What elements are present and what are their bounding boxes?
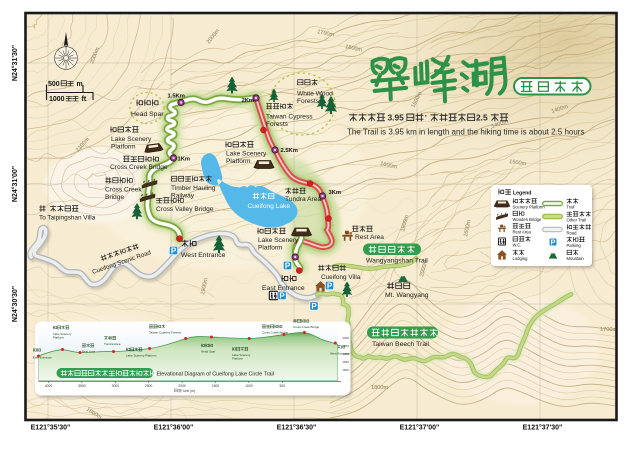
svg-text:2.5: 2.5 — [476, 113, 488, 123]
svg-text:1Km: 1Km — [178, 157, 191, 163]
svg-text:2Km: 2Km — [242, 98, 255, 104]
svg-text:White Wood: White Wood — [297, 91, 333, 98]
svg-text:3Km: 3Km — [329, 190, 342, 196]
svg-text:3500: 3500 — [78, 384, 86, 388]
svg-text:Platform: Platform — [226, 158, 251, 165]
svg-text:·: · — [425, 111, 428, 121]
svg-text:Tundra Area: Tundra Area — [285, 196, 321, 203]
svg-text:Tundra Area: Tundra Area — [104, 342, 121, 346]
svg-text:1.5Km: 1.5Km — [168, 94, 185, 100]
svg-text:Taiwan Beech Trail: Taiwan Beech Trail — [372, 341, 430, 348]
svg-text:Scenery Platform: Scenery Platform — [513, 205, 546, 210]
svg-text:E121°37'30": E121°37'30" — [523, 424, 563, 432]
svg-text:1500: 1500 — [212, 384, 220, 388]
svg-text:E121°37'00": E121°37'00" — [400, 424, 440, 432]
svg-text:1000: 1000 — [49, 96, 65, 103]
svg-text:1000: 1000 — [245, 384, 253, 388]
svg-text:Elevational Diagram of Cueifon: Elevational Diagram of Cueifong Lake Cir… — [157, 372, 274, 378]
svg-text:Cueifong Villa: Cueifong Villa — [321, 274, 361, 281]
svg-text:N24°31'00": N24°31'00" — [11, 166, 19, 202]
svg-text:N24°31'30": N24°31'30" — [11, 45, 19, 81]
svg-text:Lake Scenery: Lake Scenery — [111, 136, 152, 143]
svg-text:E121°35'30": E121°35'30" — [31, 424, 71, 432]
svg-text:The Trail is 3.95 km in length: The Trail is 3.95 km in length and the h… — [347, 128, 584, 137]
svg-text:4000: 4000 — [45, 384, 53, 388]
svg-text:Taiwan Cypress: Taiwan Cypress — [266, 114, 313, 121]
svg-text:2.5Km: 2.5Km — [281, 148, 298, 154]
svg-text:1850: 1850 — [342, 360, 349, 364]
svg-text:East Entrance: East Entrance — [33, 356, 52, 360]
svg-text:Parking: Parking — [567, 243, 582, 248]
svg-text:To Taipingshan Villa: To Taipingshan Villa — [39, 215, 96, 222]
svg-text:Road: Road — [567, 231, 578, 236]
svg-text:Platform: Platform — [53, 335, 65, 339]
svg-text:Mountain: Mountain — [567, 256, 585, 261]
svg-text:Rest Area: Rest Area — [513, 230, 532, 235]
svg-text:West Entrance: West Entrance — [330, 352, 350, 356]
svg-text:Cueifong Lake: Cueifong Lake — [248, 203, 291, 210]
svg-text:Cross Creek Bridge: Cross Creek Bridge — [262, 331, 289, 335]
svg-text:1800: 1800 — [342, 368, 349, 372]
svg-text:Legend: Legend — [513, 191, 531, 197]
svg-text:Forests: Forests — [266, 121, 289, 128]
svg-text:West Entrance: West Entrance — [181, 252, 226, 259]
svg-text:Taiwan Cypress Forests: Taiwan Cypress Forests — [149, 331, 182, 335]
svg-text:Wangyangshan Trail: Wangyangshan Trail — [366, 258, 428, 265]
svg-text:3.95: 3.95 — [388, 113, 405, 123]
svg-text:Lake Scenery: Lake Scenery — [226, 151, 267, 158]
svg-text:N24°30'30": N24°30'30" — [11, 286, 19, 322]
svg-text:3000: 3000 — [112, 384, 120, 388]
svg-text:1700m: 1700m — [600, 327, 617, 333]
svg-text:Rest Area: Rest Area — [355, 234, 384, 241]
svg-text:500: 500 — [280, 384, 286, 388]
svg-text:Bridge: Bridge — [105, 194, 124, 201]
svg-text:m: m — [77, 81, 83, 88]
svg-text:Lodging: Lodging — [513, 256, 529, 261]
svg-text:1800m: 1800m — [371, 385, 388, 391]
svg-text:Other Trail: Other Trail — [567, 218, 587, 223]
svg-text:Forests: Forests — [297, 98, 320, 105]
svg-text:Head Spar: Head Spar — [201, 350, 215, 354]
svg-text:E121°36'30": E121°36'30" — [277, 424, 317, 432]
svg-text:W.C.: W.C. — [513, 243, 522, 248]
svg-text:Trail: Trail — [567, 205, 575, 210]
svg-text:Mt. Wangyang: Mt. Wangyang — [385, 292, 429, 299]
svg-text:Cross Creek Bridge: Cross Creek Bridge — [110, 164, 168, 171]
svg-text:Head Spar: Head Spar — [131, 111, 164, 118]
svg-text:ft: ft — [82, 96, 87, 103]
svg-text:Cross Creek: Cross Creek — [105, 187, 142, 194]
svg-text:Wooden Bridge: Wooden Bridge — [513, 217, 542, 222]
svg-text:Platform: Platform — [232, 356, 244, 360]
svg-text:Cross Creek Bridge: Cross Creek Bridge — [293, 325, 320, 329]
svg-text:Lake Scenery Platform: Lake Scenery Platform — [126, 354, 157, 358]
svg-text:East Entrance: East Entrance — [262, 285, 305, 292]
svg-text:Timber Hauling: Timber Hauling — [171, 185, 216, 192]
svg-text:Cross Valley Bridge: Cross Valley Bridge — [156, 206, 214, 213]
svg-text:E121°36'00": E121°36'00" — [154, 424, 194, 432]
svg-text:2000: 2000 — [178, 384, 186, 388]
svg-text:2000: 2000 — [342, 336, 349, 340]
svg-text:Platform: Platform — [258, 244, 283, 251]
svg-text:Unit (m): Unit (m) — [183, 389, 195, 393]
svg-text:500: 500 — [48, 81, 60, 88]
svg-text:Lake Scenery: Lake Scenery — [258, 237, 299, 244]
svg-text:Rest Area: Rest Area — [82, 350, 96, 354]
svg-text:Platform: Platform — [111, 143, 136, 150]
svg-text:2500: 2500 — [145, 384, 153, 388]
